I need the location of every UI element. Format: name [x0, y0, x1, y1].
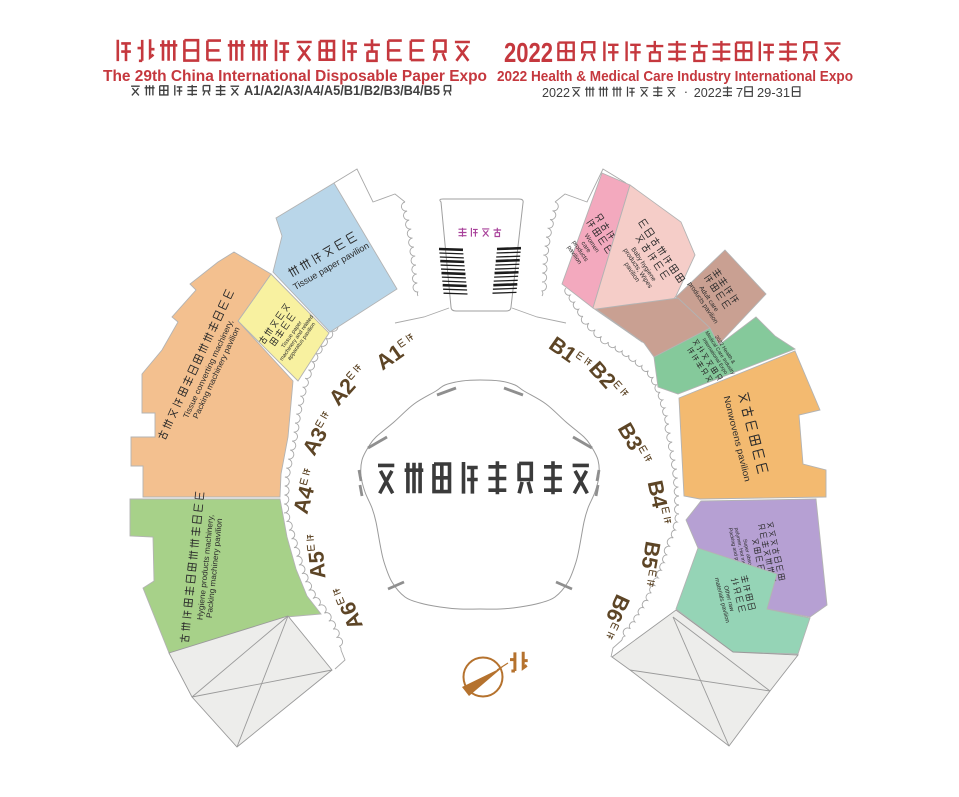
svg-text:A1/A2/A3/A4/A5/B1/B2/B3/B4/B5: A1/A2/A3/A4/A5/B1/B2/B3/B4/B5	[244, 83, 440, 98]
svg-text:A4: A4	[289, 483, 319, 516]
svg-text:7: 7	[736, 85, 743, 100]
svg-text:B4: B4	[643, 478, 672, 510]
svg-text:B3: B3	[613, 419, 648, 455]
svg-text:A5: A5	[304, 550, 330, 580]
svg-text:2022: 2022	[694, 85, 722, 100]
svg-text:A2: A2	[324, 374, 360, 411]
svg-text:·: ·	[684, 84, 688, 99]
svg-text:2022: 2022	[542, 85, 570, 100]
svg-text:B6: B6	[601, 591, 634, 626]
svg-text:2022 Health & Medical Care Ind: 2022 Health & Medical Care Industry Inte…	[497, 68, 853, 85]
svg-text:A1: A1	[372, 340, 408, 375]
svg-text:2022: 2022	[504, 37, 553, 68]
svg-text:B1: B1	[545, 332, 581, 367]
svg-text:B5: B5	[636, 539, 664, 570]
svg-text:29-31: 29-31	[757, 85, 790, 100]
svg-text:A3: A3	[298, 424, 333, 460]
